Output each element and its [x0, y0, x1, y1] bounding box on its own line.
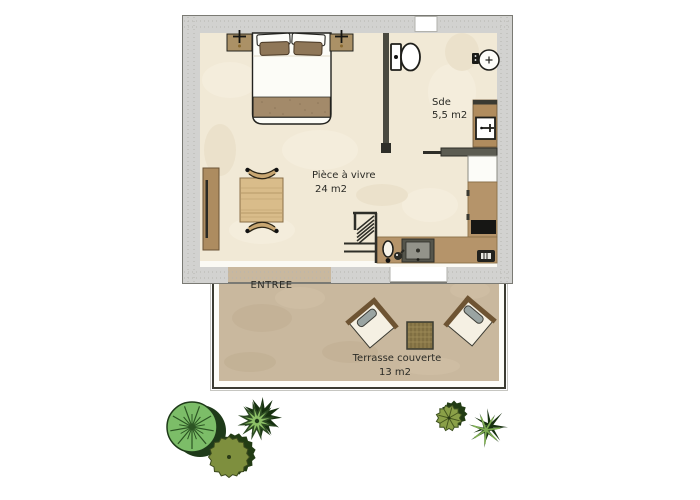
floor-plan-page: Pièce à vivre 24 m2 Sde 5,5 m2 ENTREE Te…: [0, 0, 700, 500]
toilet-icon: [391, 44, 420, 71]
appliance-icon: [477, 250, 495, 262]
wall-left: [183, 16, 200, 283]
outdoor-table: [407, 322, 433, 349]
floor-plan: Pièce à vivre 24 m2 Sde 5,5 m2 ENTREE Te…: [0, 0, 700, 500]
bathroom-area: 5,5 m2: [432, 110, 467, 121]
water-heater-icon: [479, 50, 499, 70]
switch-icon: [472, 53, 479, 64]
wall-bottom-mid: [331, 267, 390, 283]
kitchen-sink-icon: [402, 239, 434, 262]
palm-plant-icon: [469, 408, 508, 448]
vanity: [473, 100, 497, 147]
star-plant-icon: [238, 397, 283, 441]
bed: [253, 33, 332, 124]
cooktop-icon: [471, 220, 496, 234]
wall-top: [183, 16, 512, 33]
top-window: [415, 17, 437, 32]
sideboard: [203, 168, 219, 250]
entrance-label: ENTREE: [251, 280, 293, 291]
bottom-window: [390, 267, 447, 282]
wall-bottom-left: [183, 267, 228, 283]
terrace-label: Terrasse couverte: [352, 353, 442, 364]
bathroom-label: Sde: [432, 97, 451, 108]
dining-table: [240, 178, 283, 222]
small-bush-icon: [436, 401, 467, 431]
bed-blanket: [253, 97, 330, 117]
wall-right: [497, 16, 512, 283]
pillow-left: [260, 41, 289, 55]
wall-bottom-right: [447, 267, 512, 283]
fridge: [468, 156, 497, 182]
living-room-label: Pièce à vivre: [312, 169, 376, 181]
terrace-area: 13 m2: [379, 367, 411, 378]
pillow-right: [294, 42, 322, 56]
vanity-sink-icon: [476, 118, 495, 140]
living-room-area: 24 m2: [315, 184, 347, 195]
